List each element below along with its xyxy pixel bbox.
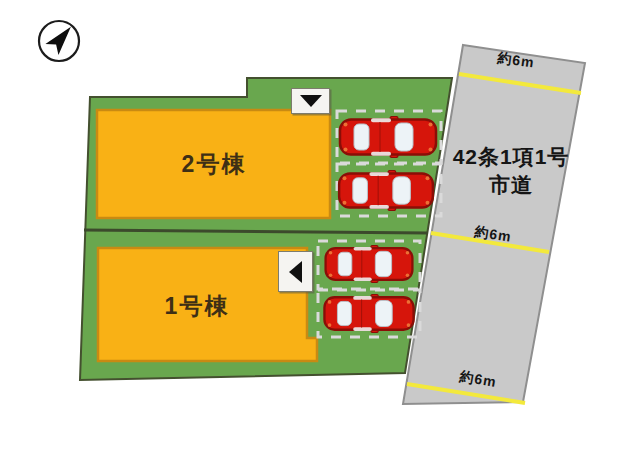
site-plan-graphic	[0, 0, 640, 457]
entrance-arrow-box-building-1	[278, 251, 313, 292]
building-2-label: 2号棟	[182, 149, 247, 180]
car-icon	[324, 294, 413, 332]
car-icon	[339, 170, 433, 210]
road-name-label: 42条1項1号 市道	[453, 143, 570, 200]
north-arrow-icon	[39, 21, 79, 61]
car-icon	[326, 245, 413, 282]
site-plan: 2号棟 1号棟 42条1項1号 市道 約6m 約6m 約6m	[0, 0, 640, 457]
building-1-label: 1号棟	[165, 291, 230, 322]
arrow-left-icon	[289, 261, 302, 283]
road-name-line2: 市道	[453, 171, 570, 199]
road-name-line1: 42条1項1号	[453, 143, 570, 171]
entrance-arrow-box-building-2	[291, 88, 330, 114]
arrow-down-icon	[300, 95, 322, 107]
car-icon	[340, 117, 436, 158]
